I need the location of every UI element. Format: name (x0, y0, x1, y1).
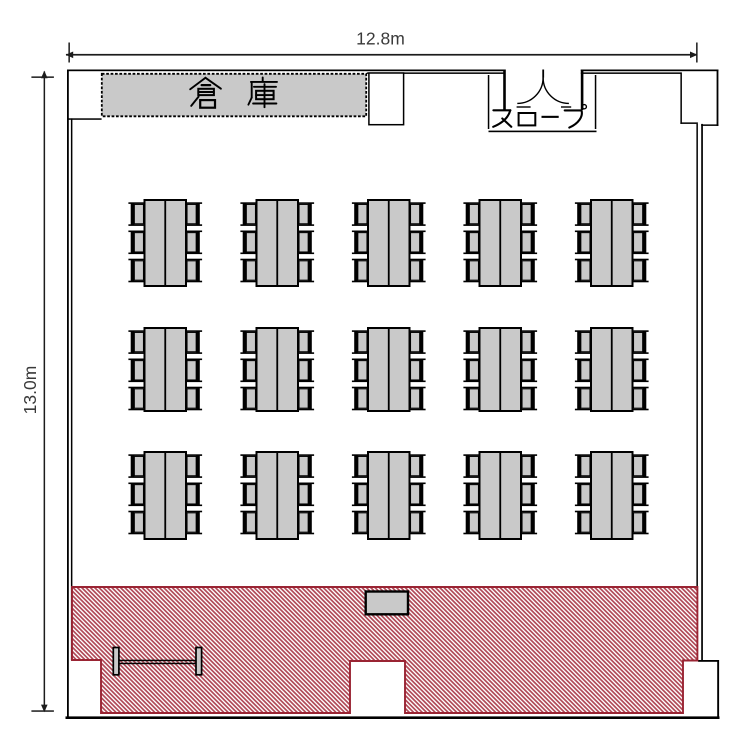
svg-text:13.0m: 13.0m (20, 366, 40, 415)
svg-text:12.8m: 12.8m (356, 29, 405, 49)
